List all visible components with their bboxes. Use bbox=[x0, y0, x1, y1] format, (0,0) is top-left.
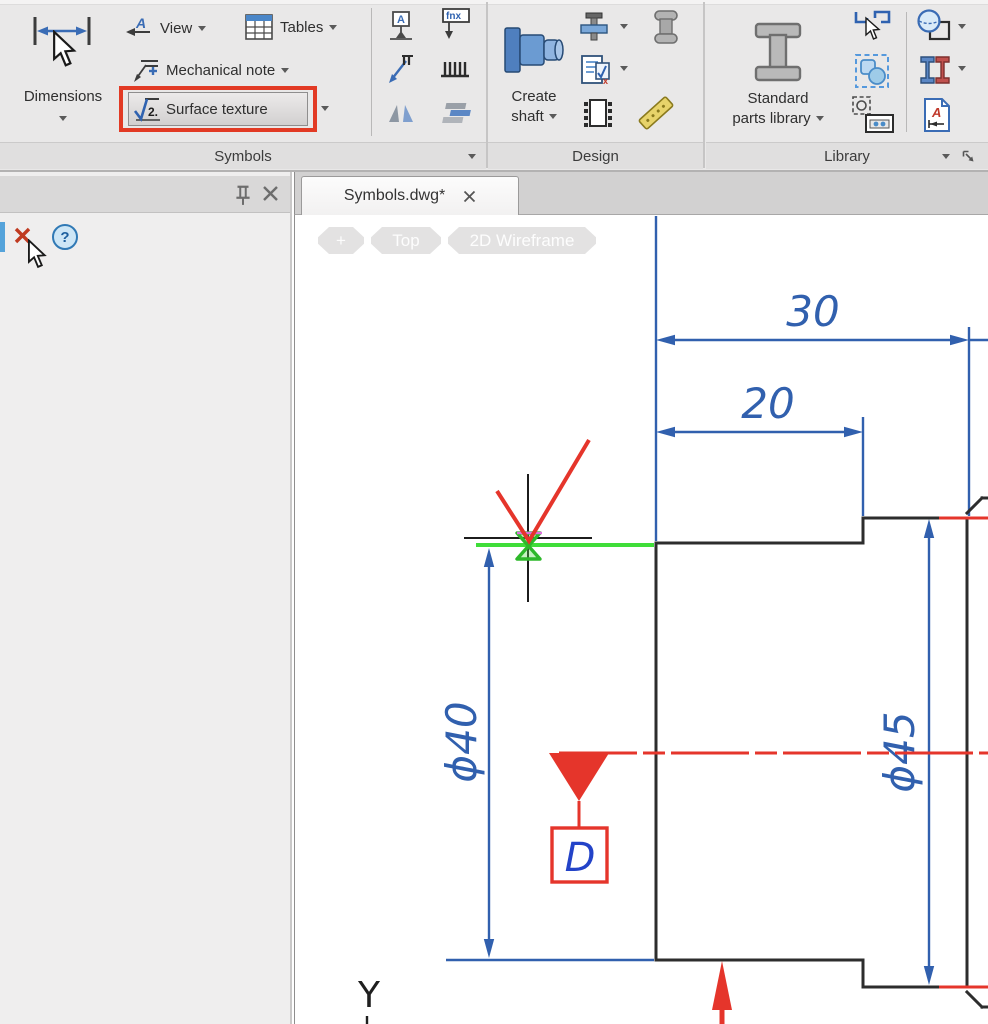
create-shaft-button[interactable]: Create shaft bbox=[495, 8, 573, 134]
chevron-down-icon[interactable] bbox=[620, 24, 628, 29]
drawing-geometry: 30 20 ϕ40 ϕ45 bbox=[295, 215, 988, 1024]
view-button[interactable]: A View bbox=[124, 13, 206, 43]
design-panel-strip[interactable]: Design bbox=[488, 142, 703, 169]
viewport-visual-style-control[interactable]: 2D Wireframe bbox=[448, 227, 596, 254]
chevron-down-icon[interactable] bbox=[281, 68, 289, 73]
mechanical-note-icon bbox=[132, 55, 160, 85]
measure-button[interactable] bbox=[634, 92, 678, 134]
stud-button[interactable] bbox=[646, 8, 686, 46]
pin-icon[interactable] bbox=[234, 184, 252, 206]
viewport-view-label: Top bbox=[392, 231, 419, 251]
select-similar-icon bbox=[854, 53, 890, 89]
steel-shapes-icon bbox=[917, 53, 953, 87]
standard-parts-label-1: Standard bbox=[748, 90, 809, 107]
viewport-control-menu[interactable]: + bbox=[318, 227, 364, 254]
svg-text:A: A bbox=[135, 15, 146, 31]
dim-30-text: 30 bbox=[786, 287, 839, 336]
viewport-controls: + Top 2D Wireframe bbox=[318, 227, 596, 254]
tables-icon bbox=[244, 12, 274, 42]
feature-control-frame-button[interactable]: fnx bbox=[438, 6, 472, 42]
ucs-icon: Y bbox=[357, 975, 381, 1024]
datum-identifier-button[interactable]: A bbox=[385, 8, 417, 44]
caterpillar-icon bbox=[439, 58, 471, 80]
close-icon[interactable] bbox=[262, 185, 279, 202]
select-parts-icon bbox=[853, 9, 893, 43]
create-shaft-label-1: Create bbox=[511, 88, 556, 105]
tool-palette: ? bbox=[0, 172, 292, 1024]
library-panel-strip[interactable]: Library bbox=[706, 142, 988, 169]
document-tab[interactable]: Symbols.dwg* bbox=[301, 176, 519, 215]
document-tabbar: Symbols.dwg* bbox=[294, 172, 988, 215]
standard-parts-label-2: parts library bbox=[732, 110, 810, 127]
weld-symbol-icon bbox=[386, 100, 416, 126]
parts-list-icon: x bbox=[579, 53, 613, 87]
viewport-plus-label: + bbox=[336, 231, 346, 251]
datum-symbol: D bbox=[549, 753, 609, 882]
document-tab-title: Symbols.dwg* bbox=[344, 187, 445, 205]
ruler-icon bbox=[635, 93, 677, 133]
chip-icon bbox=[580, 97, 616, 129]
chevron-down-icon[interactable] bbox=[549, 114, 557, 119]
symbols-panel-strip[interactable]: Symbols bbox=[0, 142, 486, 169]
drawing-area: Symbols.dwg* + Top 2D Wireframe bbox=[294, 172, 988, 1024]
tables-button[interactable]: Tables bbox=[244, 12, 337, 42]
chip-button[interactable] bbox=[579, 96, 617, 130]
select-parts-button[interactable] bbox=[852, 8, 894, 44]
chevron-down-icon[interactable] bbox=[59, 116, 67, 121]
chevron-down-icon[interactable] bbox=[620, 66, 628, 71]
chevron-down-icon[interactable] bbox=[942, 154, 950, 159]
viewport-style-label: 2D Wireframe bbox=[470, 231, 575, 251]
datum-label-text: D bbox=[565, 835, 596, 881]
weld-caterpillar-button[interactable] bbox=[438, 56, 472, 82]
view-symbol-button[interactable] bbox=[914, 8, 954, 44]
view-icon: A bbox=[124, 15, 154, 41]
chevron-down-icon[interactable] bbox=[198, 26, 206, 31]
edge-symbol-button[interactable] bbox=[438, 98, 474, 128]
library-panel-label: Library bbox=[824, 148, 870, 165]
application-window: Dimensions A View Tables bbox=[0, 0, 988, 1024]
palette-edge-highlight bbox=[0, 222, 5, 252]
dimensions-button[interactable]: Dimensions bbox=[4, 8, 122, 134]
dim-20-text: 20 bbox=[741, 379, 794, 428]
svg-text:A: A bbox=[931, 105, 941, 120]
stud-icon bbox=[650, 9, 682, 45]
create-shaft-label-2: shaft bbox=[511, 108, 544, 125]
model-space-canvas[interactable]: + Top 2D Wireframe bbox=[294, 215, 988, 1024]
edge-symbol-icon bbox=[439, 100, 473, 126]
parts-list-button[interactable]: x bbox=[578, 52, 614, 88]
datum-identifier-icon: A bbox=[387, 10, 415, 42]
annotation-document-button[interactable]: A bbox=[918, 96, 956, 134]
dim-phi40-text: ϕ40 bbox=[437, 701, 486, 782]
mechanical-note-button[interactable]: Mechanical note bbox=[132, 55, 289, 85]
ribbon-top-strip bbox=[0, 0, 988, 5]
svg-text:fnx: fnx bbox=[446, 11, 461, 22]
annotation-doc-icon: A bbox=[920, 97, 954, 133]
svg-text:2.: 2. bbox=[148, 105, 158, 119]
svg-text:x: x bbox=[603, 76, 608, 86]
help-label: ? bbox=[60, 229, 69, 246]
weld-symbol-button[interactable] bbox=[385, 98, 417, 128]
dimensions-label: Dimensions bbox=[24, 88, 102, 105]
view-sphere-icon bbox=[915, 9, 953, 43]
surface-texture-label: Surface texture bbox=[166, 101, 268, 118]
leader-note-icon bbox=[386, 53, 416, 85]
red-leader-arrow bbox=[712, 961, 732, 1024]
ribbon: Dimensions A View Tables bbox=[0, 0, 988, 172]
library-inner-separator bbox=[906, 12, 907, 132]
standard-parts-icon bbox=[750, 20, 806, 84]
viewport-view-control[interactable]: Top bbox=[371, 227, 441, 254]
steel-shapes-button[interactable] bbox=[916, 52, 954, 88]
panel-separator bbox=[703, 2, 705, 168]
dialog-launcher-icon[interactable] bbox=[962, 150, 975, 163]
leader-note-button[interactable] bbox=[385, 52, 417, 86]
create-shaft-icon bbox=[503, 22, 565, 82]
chevron-down-icon[interactable] bbox=[321, 106, 329, 111]
view-label: View bbox=[160, 20, 192, 37]
mouse-cursor-icon bbox=[27, 239, 48, 269]
mechanical-note-label: Mechanical note bbox=[166, 62, 275, 79]
detail-view-button[interactable] bbox=[849, 94, 897, 136]
surface-texture-preview bbox=[497, 440, 589, 541]
surface-texture-button[interactable]: 2. Surface texture bbox=[128, 92, 308, 126]
feature-control-frame-icon: fnx bbox=[439, 7, 471, 41]
chevron-down-icon[interactable] bbox=[329, 25, 337, 30]
symbols-inner-separator bbox=[371, 8, 372, 136]
chevron-down-icon[interactable] bbox=[958, 66, 966, 71]
chevron-down-icon[interactable] bbox=[468, 154, 476, 159]
ucs-y-label: Y bbox=[357, 975, 381, 1016]
tables-label: Tables bbox=[280, 19, 323, 36]
surface-texture-icon: 2. bbox=[133, 95, 161, 123]
palette-titlebar[interactable] bbox=[0, 176, 290, 213]
screw-connection-button[interactable] bbox=[576, 10, 612, 44]
standard-parts-library-button[interactable]: Standard parts library bbox=[712, 8, 844, 134]
tab-close-icon[interactable] bbox=[463, 190, 476, 203]
screw-connection-icon bbox=[577, 11, 611, 43]
detail-view-icon bbox=[850, 95, 896, 135]
help-button[interactable]: ? bbox=[52, 224, 78, 250]
mouse-cursor-icon bbox=[52, 30, 78, 68]
svg-text:A: A bbox=[397, 14, 405, 26]
symbols-panel-label: Symbols bbox=[214, 148, 272, 165]
dimension-texts: 30 20 ϕ40 ϕ45 bbox=[437, 287, 924, 793]
select-similar-button[interactable] bbox=[853, 52, 891, 90]
design-panel-label: Design bbox=[572, 148, 619, 165]
chevron-down-icon[interactable] bbox=[816, 116, 824, 121]
chevron-down-icon[interactable] bbox=[958, 24, 966, 29]
